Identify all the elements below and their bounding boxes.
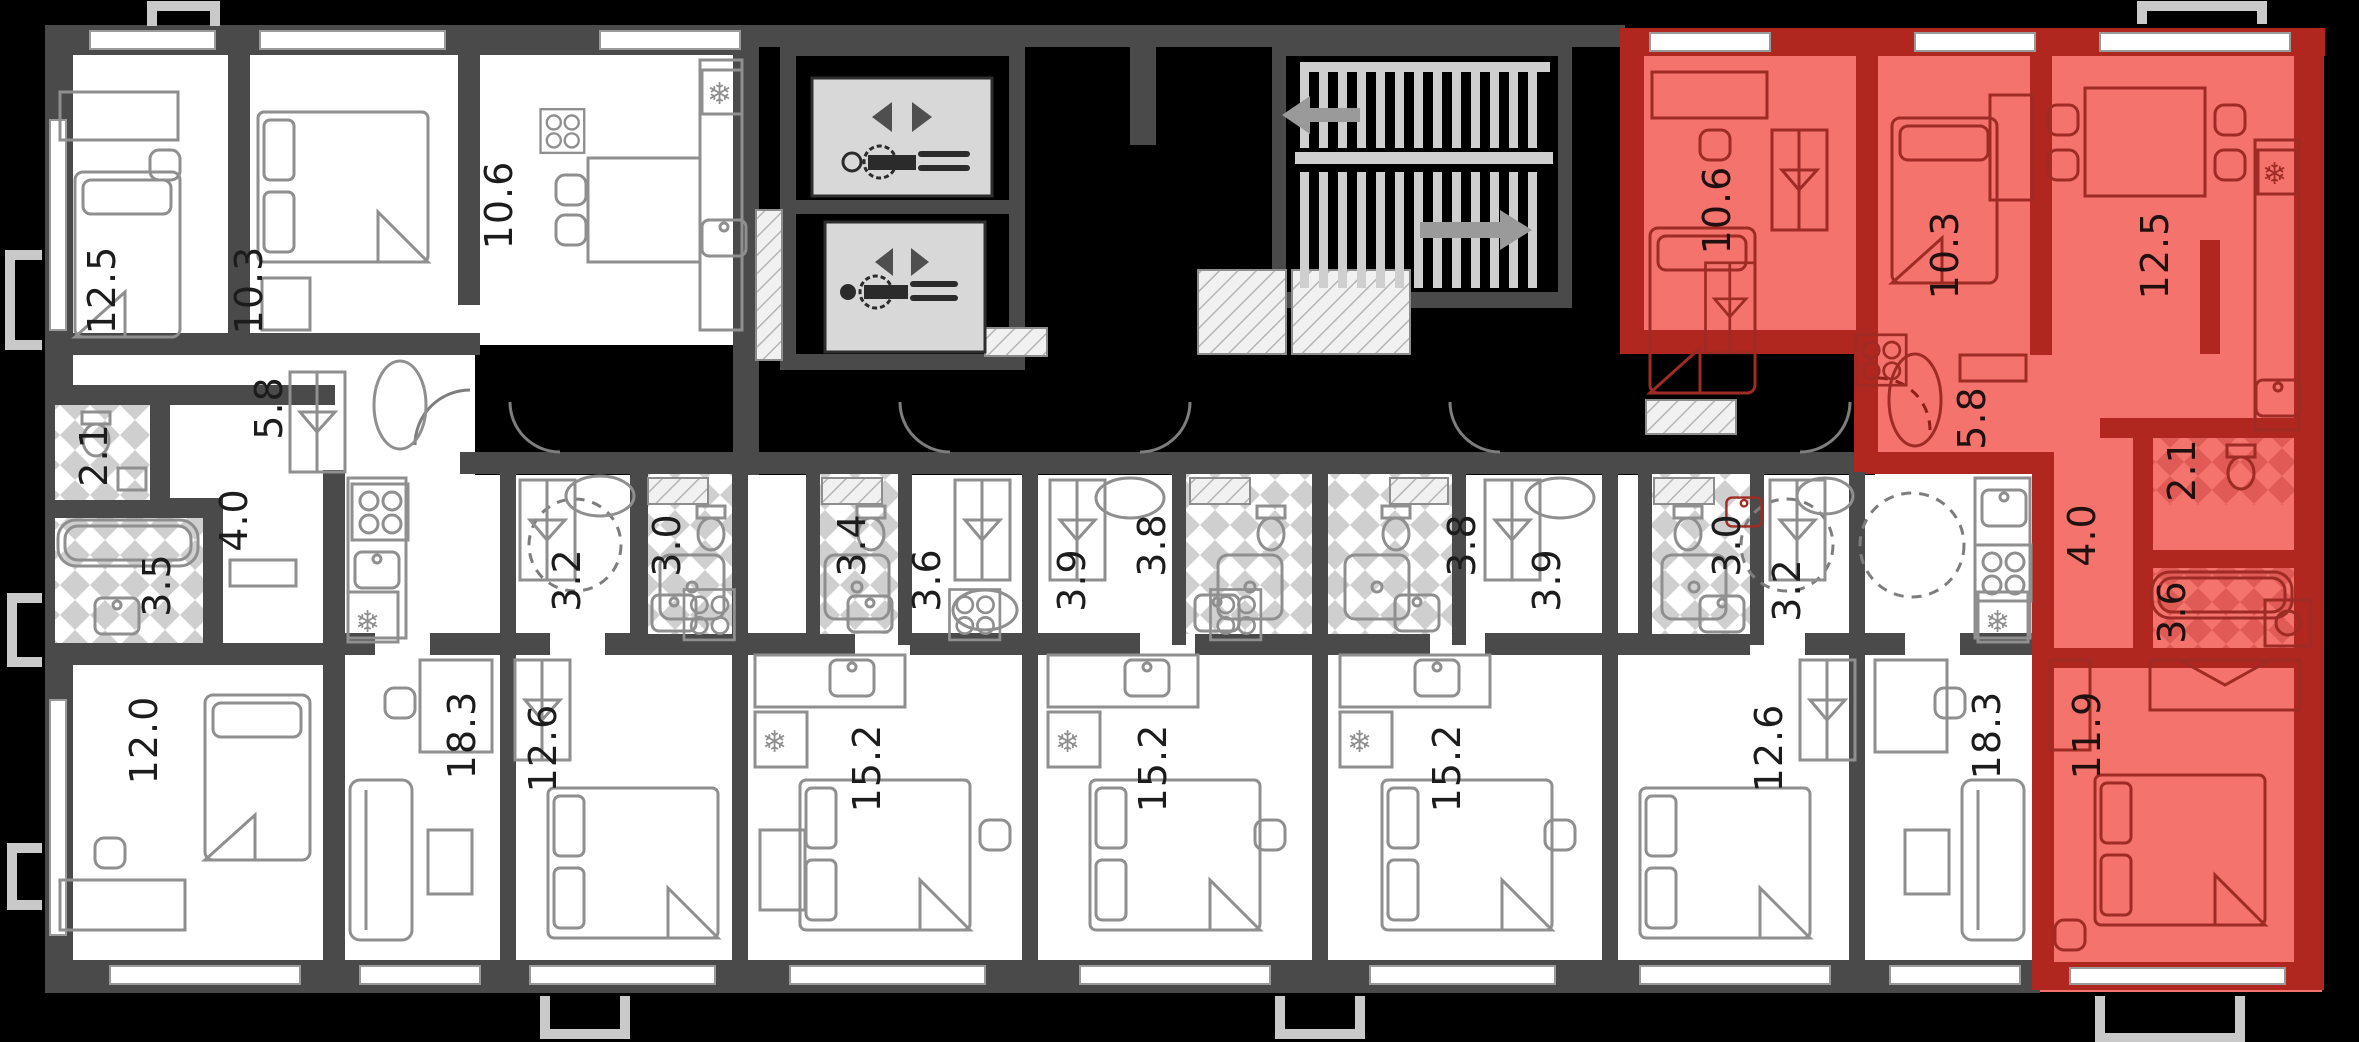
room-label-red: 10.6 [1695, 166, 1739, 255]
room-label-red: 5.8 [1950, 386, 1994, 449]
elevator-cabin-1 [812, 78, 992, 196]
room-label: 3.2 [545, 548, 589, 611]
room-label: 3.0 [1705, 513, 1749, 576]
room-label: 3.9 [1050, 548, 1094, 611]
room-label-red: 10.3 [1923, 211, 1967, 300]
room-label: 15.2 [1425, 724, 1469, 813]
room-label: 3.8 [1440, 513, 1484, 576]
room-label: 3.5 [135, 553, 179, 616]
room-label: 3.6 [905, 548, 949, 611]
room-label: 4.0 [212, 488, 256, 551]
room-label: 3.4 [830, 513, 874, 576]
snowflake-icon: ❄ [707, 78, 732, 111]
room-label: 3.8 [1130, 513, 1174, 576]
room-label-red: 11.9 [2065, 691, 2109, 780]
snowflake-icon: ❄ [762, 726, 787, 759]
snowflake-icon: ❄ [1985, 606, 2010, 639]
room-label: 12.6 [521, 704, 565, 793]
room-label: 12.5 [80, 246, 124, 335]
room-label: 15.2 [1131, 724, 1175, 813]
room-label: 18.3 [1965, 691, 2009, 780]
room-label: 3.9 [1525, 548, 1569, 611]
room-label-red: 12.5 [2133, 211, 2177, 300]
room-label: 12.6 [1747, 704, 1791, 793]
room-label: 3.0 [645, 513, 689, 576]
room-label: 5.8 [247, 376, 291, 439]
floor-plan-svg: ❄ ❄ ❄ ❄ ❄ ❄ ❄ 12.5 10. [0, 0, 2359, 1042]
room-label-red: 4.0 [2060, 503, 2104, 566]
room-label: 10.6 [477, 161, 521, 250]
room-label: 12.0 [122, 696, 166, 785]
room-label: 15.2 [845, 724, 889, 813]
snowflake-icon: ❄ [1347, 726, 1372, 759]
snowflake-icon: ❄ [1055, 726, 1080, 759]
room-label-red: 2.1 [2160, 438, 2204, 501]
room-label: 3.2 [1765, 558, 1809, 621]
snowflake-icon: ❄ [355, 606, 380, 639]
staircase [1282, 62, 1553, 288]
room-label: 2.1 [72, 423, 116, 486]
floor-plan-stage: ❄ ❄ ❄ ❄ ❄ ❄ ❄ 12.5 10. [0, 0, 2359, 1042]
room-label: 18.3 [440, 691, 484, 780]
snowflake-icon: ❄ [2262, 158, 2287, 191]
room-label: 10.3 [227, 246, 271, 335]
room-label-red: 3.6 [2150, 580, 2194, 643]
